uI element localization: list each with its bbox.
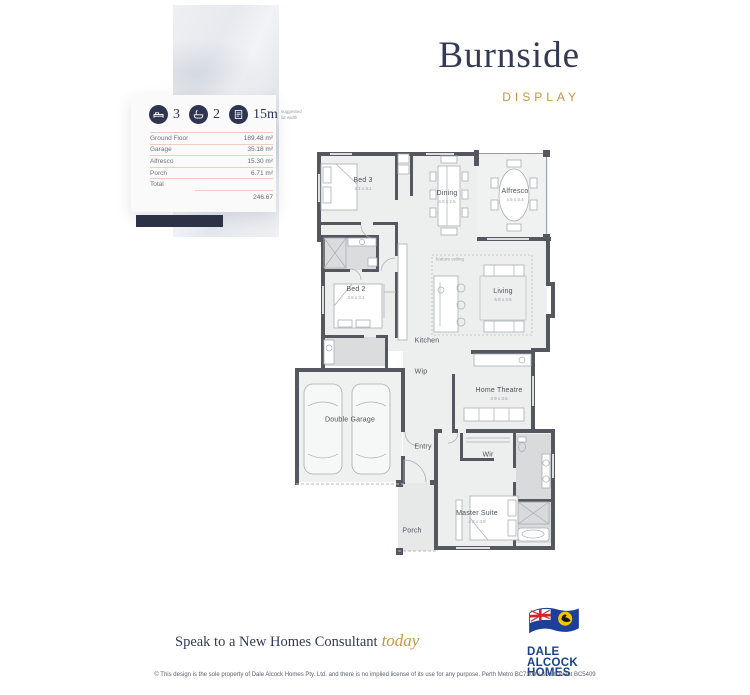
room-label-living: Living5.8 x 4.5	[493, 288, 513, 302]
stats-row: 3 2 15m suggested lot width	[131, 95, 276, 124]
disclaimer-text: © This design is the sole property of Da…	[0, 672, 750, 678]
plan-subtitle: DISPLAY	[390, 90, 580, 104]
flyer-page: 3 2 15m suggested lot width Ground Floor…	[0, 0, 750, 695]
cta-text: Speak to a New Homes Consultanttoday	[175, 631, 419, 651]
area-total-value: 246.67	[195, 190, 273, 201]
area-row: Alfresco 15.30 m²	[150, 155, 273, 167]
area-total-label-row: Total	[150, 178, 273, 190]
bed-icon	[149, 105, 168, 124]
area-table: Ground Floor 189.48 m² Garage 35.18 m² A…	[131, 124, 276, 201]
room-label-entry: Entry	[414, 444, 431, 453]
cta-script-word: today	[382, 631, 420, 650]
frontage-note: suggested lot width	[281, 109, 305, 120]
bed-count: 3	[173, 107, 180, 123]
flag-icon	[527, 605, 581, 641]
feature-ceiling-note: feature ceiling	[436, 257, 464, 262]
room-label-dining: Dining4.5 x 2.5	[436, 190, 457, 204]
floor-plan: Bed 34.1 x 3.1 Dining4.5 x 2.5 Alfresco4…	[288, 138, 562, 562]
bath-count: 2	[213, 107, 220, 123]
navy-accent-bar	[136, 215, 223, 227]
room-label-double-garage: Double Garage	[325, 417, 375, 426]
room-label-master-suite: Master Suite4.2 x 3.9	[456, 510, 498, 524]
stat-baths: 2	[189, 105, 220, 124]
room-label-wir: Wir	[482, 452, 493, 461]
room-label-porch: Porch	[402, 528, 421, 537]
title-block: Burnside DISPLAY	[390, 34, 580, 104]
bath-icon	[189, 105, 208, 124]
room-label-bed-2: Bed 23.6 x 3.1	[346, 286, 365, 300]
lot-width-icon	[229, 105, 248, 124]
frontage-value: 15m	[253, 107, 278, 123]
room-label-kitchen: Kitchen	[415, 338, 440, 347]
dale-alcock-logo: DALE ALCOCK HOMES	[527, 605, 583, 679]
stat-beds: 3	[149, 105, 180, 124]
stat-frontage: 15m suggested lot width	[229, 105, 305, 124]
plan-title: Burnside	[390, 34, 580, 77]
summary-card: 3 2 15m suggested lot width Ground Floor…	[131, 95, 276, 212]
room-label-alfresco: Alfresco4.5 x 3.4	[502, 188, 529, 202]
area-row: Ground Floor 189.48 m²	[150, 132, 273, 144]
area-row: Garage 35.18 m²	[150, 144, 273, 156]
room-label-wip: Wip	[415, 369, 428, 378]
room-label-home-theatre: Home Theatre3.9 x 3.5	[475, 387, 522, 401]
room-label-bed-3: Bed 34.1 x 3.1	[353, 177, 372, 191]
area-row: Porch 6.71 m²	[150, 167, 273, 179]
